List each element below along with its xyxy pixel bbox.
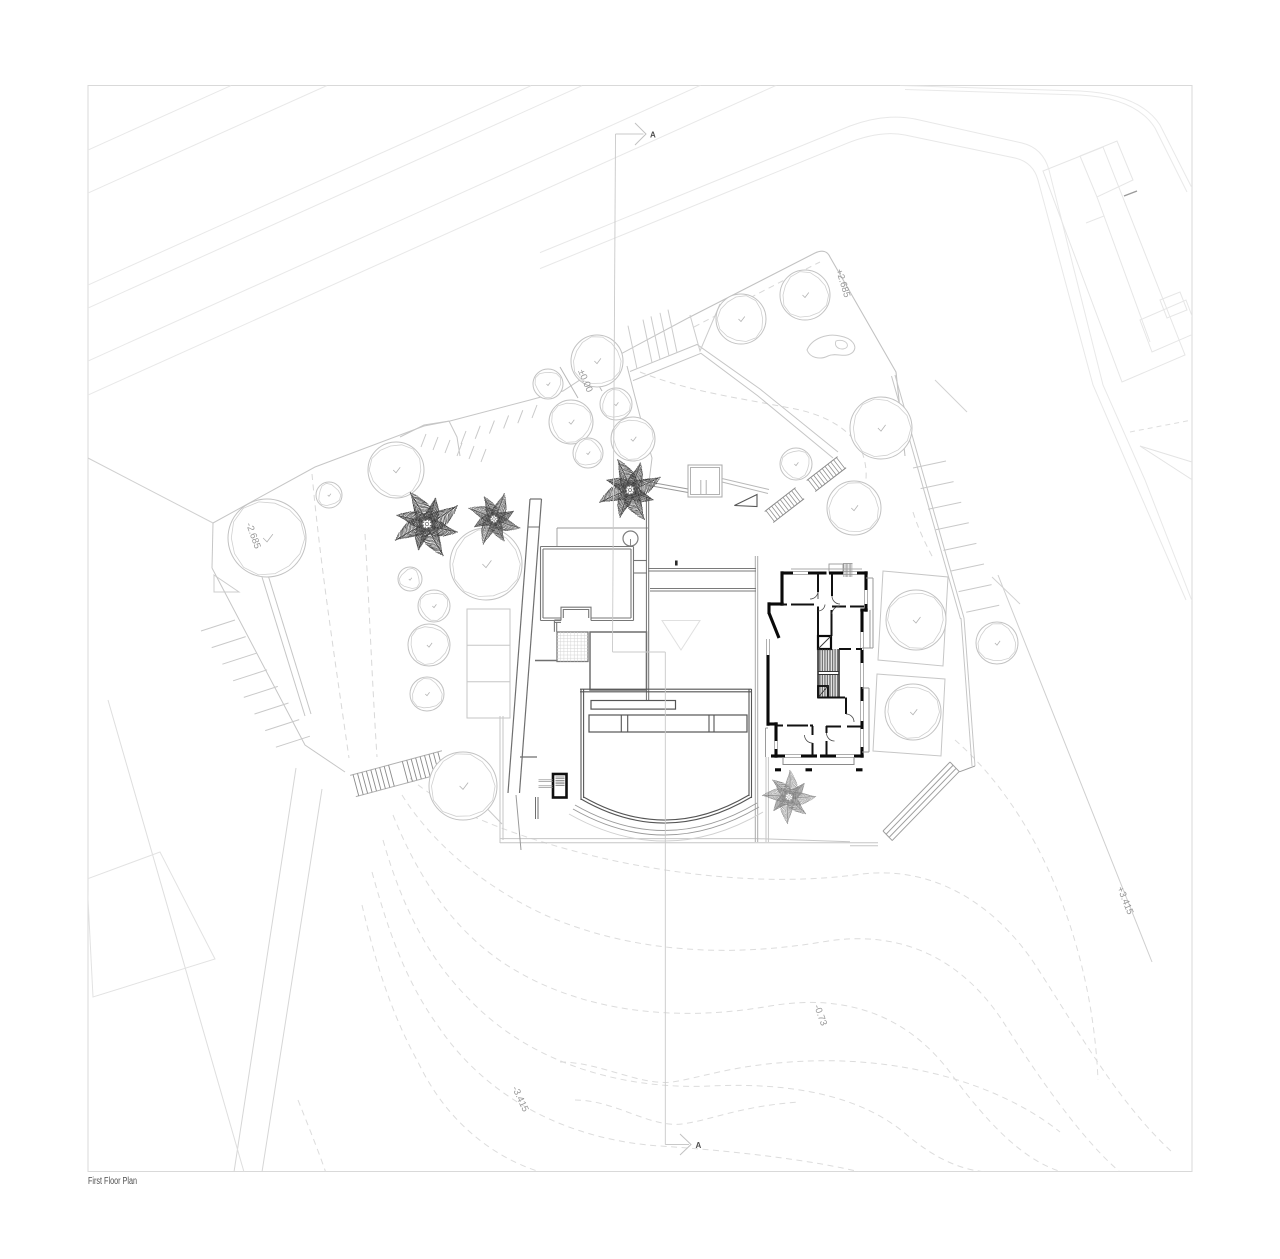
svg-text:A: A — [650, 131, 656, 140]
svg-text:A: A — [696, 1141, 702, 1150]
svg-text:First Floor Plan: First Floor Plan — [88, 1176, 137, 1187]
